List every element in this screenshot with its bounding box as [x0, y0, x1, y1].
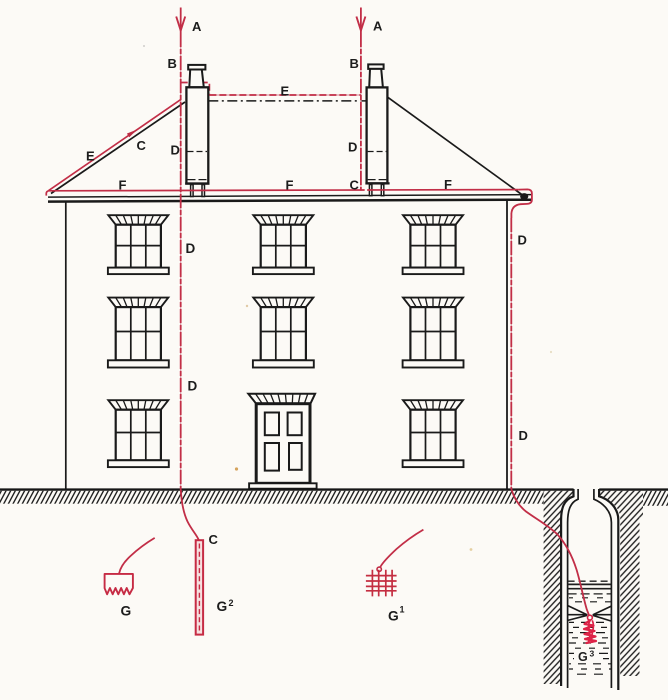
svg-text:D: D — [186, 241, 196, 256]
svg-text:D: D — [348, 139, 357, 154]
svg-text:D: D — [171, 142, 180, 157]
svg-text:G: G — [217, 599, 228, 614]
svg-text:2: 2 — [229, 598, 234, 608]
svg-text:B: B — [350, 56, 359, 71]
svg-text:D: D — [188, 378, 198, 393]
svg-text:A: A — [373, 19, 383, 34]
svg-text:D: D — [518, 233, 527, 248]
svg-text:A: A — [192, 19, 202, 34]
svg-text:D: D — [519, 428, 528, 443]
svg-text:C: C — [209, 532, 219, 547]
svg-text:B: B — [168, 56, 177, 71]
svg-text:C: C — [137, 138, 147, 153]
svg-text:G: G — [578, 650, 588, 664]
svg-text:3: 3 — [590, 649, 595, 659]
svg-text:E: E — [281, 84, 290, 99]
svg-text:G: G — [121, 604, 132, 619]
svg-text:E: E — [86, 148, 95, 163]
svg-text:F: F — [286, 178, 294, 193]
svg-text:1: 1 — [400, 605, 405, 615]
svg-text:F: F — [444, 177, 452, 192]
svg-text:G: G — [388, 609, 399, 624]
svg-text:F: F — [119, 177, 127, 192]
svg-text:C: C — [350, 178, 360, 193]
